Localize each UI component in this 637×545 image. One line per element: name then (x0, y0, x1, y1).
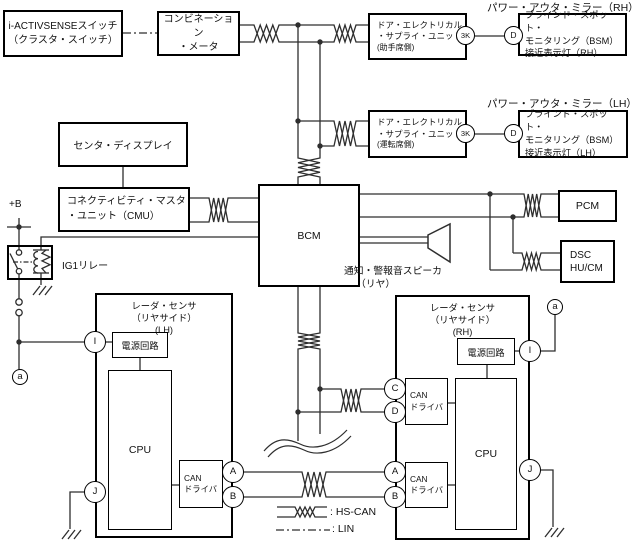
connector-i-rh: I (519, 340, 541, 362)
box-power-circuit-rh: 電源回路 (457, 338, 515, 365)
connector-d-mirror-lh: D (504, 124, 523, 143)
box-door-electrical-supply-unit-lh: ドア・エレクトリカル ・サプライ・ユニット (運転席側) (368, 110, 467, 158)
label-plus-b: +B (9, 199, 22, 210)
inline-connector-icon (16, 299, 22, 369)
box-dsc-hu-cm: DSC HU/CM (560, 240, 615, 283)
connector-3k-lh: 3K (456, 124, 475, 143)
box-cpu-rh: CPU (455, 378, 517, 530)
label-power-outer-mirror-rh: パワー・アウタ・ミラー（RH） (487, 0, 637, 15)
box-power-circuit-lh: 電源回路 (112, 332, 168, 358)
label-power-outer-mirror-lh: パワー・アウタ・ミラー（LH） (487, 96, 637, 111)
box-pcm: PCM (558, 190, 617, 222)
connector-j-rh: J (519, 459, 541, 481)
connector-a-bottom-left: a (12, 369, 28, 385)
connector-d-mirror-rh: D (504, 26, 523, 45)
box-combination-meter: コンビネーション ・メータ (157, 11, 240, 56)
label-speaker-line2: （リヤ） (356, 276, 395, 290)
connector-i-lh: I (84, 331, 106, 353)
box-ig1-relay (7, 245, 53, 280)
box-bsm-approach-indicator-rh: ブラインド・スポット・ モニタリング（BSM） 接近表示灯（RH） (518, 13, 627, 56)
box-cpu-lh: CPU (108, 370, 172, 530)
box-i-activsense-switch: i-ACTIVSENSEスイッチ （クラスタ・スイッチ） (3, 10, 123, 57)
legend-hs-can-symbol (277, 507, 327, 517)
connector-c-rh: C (384, 378, 406, 400)
box-can-driver-rh-lower: CAN ドライバ (405, 462, 448, 508)
box-bsm-approach-indicator-lh: ブラインド・スポット・ モニタリング（BSM） 接近表示灯（LH） (518, 110, 628, 158)
legend-hs-can-label: : HS-CAN (330, 506, 376, 518)
connector-3k-rh: 3K (456, 26, 475, 45)
connector-j-lh: J (84, 481, 106, 503)
label-speaker-line1: 通知・警報音スピーカ (344, 263, 442, 277)
connector-a-top-right: a (547, 299, 563, 315)
connector-b-rh: B (384, 486, 406, 508)
label-ig1-relay: IG1リレー (62, 257, 108, 272)
connector-a-lh: A (222, 461, 244, 483)
box-center-display: センタ・ディスプレイ (58, 122, 188, 167)
speaker-icon (360, 224, 450, 262)
box-cmu: コネクティビティ・マスタ ・ユニット（CMU） (58, 187, 190, 232)
box-door-electrical-supply-unit-rh: ドア・エレクトリカル ・サプライ・ユニット (助手席側) (368, 13, 467, 60)
legend-lin-label: : LIN (332, 523, 354, 535)
box-can-driver-lh: CAN ドライバ (179, 460, 223, 508)
wire-break-icon (264, 430, 351, 457)
wiring-diagram: i-ACTIVSENSEスイッチ （クラスタ・スイッチ） コンビネーション ・メ… (0, 0, 637, 545)
connector-b-lh: B (222, 486, 244, 508)
connector-a-rh: A (384, 461, 406, 483)
connector-d-rh: D (384, 401, 406, 423)
box-can-driver-rh-upper: CAN ドライバ (405, 378, 448, 425)
